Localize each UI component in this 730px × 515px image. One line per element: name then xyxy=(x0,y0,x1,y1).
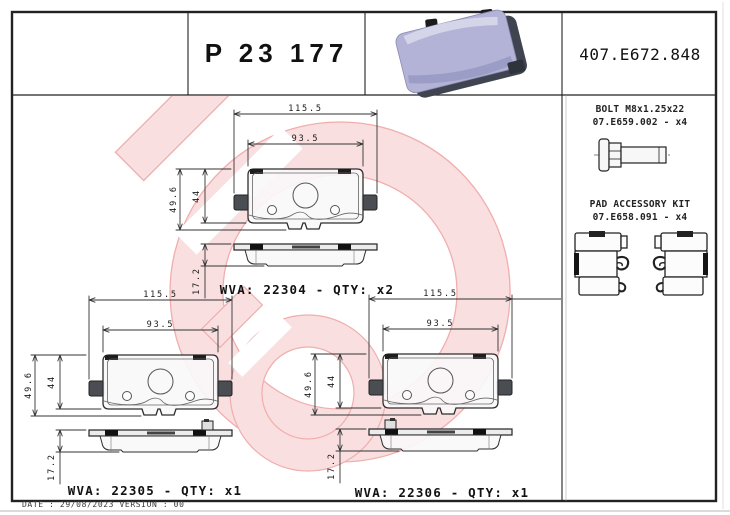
wear-indicator-tab-22306 xyxy=(385,418,396,429)
wva-label-22305: WVA: 22305 - QTY: x1 xyxy=(68,483,243,498)
reference-number: 407.E672.848 xyxy=(564,45,716,64)
pad-accessory-kit-reference: 07.E658.091 - x4 xyxy=(564,212,716,223)
brake-pad-datasheet: 115.5 93.5 49.6 xyxy=(0,0,730,515)
accessory-clip-left xyxy=(574,231,628,295)
pad-accessory-kit-title: PAD ACCESSORY KIT xyxy=(564,199,716,210)
pad-drawing-wva-22306 xyxy=(304,289,512,483)
wva-label-22306: WVA: 22306 - QTY: x1 xyxy=(355,485,530,500)
brake-pad-photo xyxy=(392,0,529,101)
wear-indicator-tab-22305 xyxy=(202,419,213,430)
wva-label-22304: WVA: 22304 - QTY: x2 xyxy=(220,282,395,297)
bolt-reference: 07.E659.002 - x4 xyxy=(564,117,716,128)
technical-drawing-canvas: 115.5 93.5 49.6 xyxy=(0,0,730,515)
date-version-footer: DATE : 29/08/2023 VERSION : 00 xyxy=(22,500,185,509)
bolt-drawing xyxy=(594,139,672,171)
part-number: P 23 177 xyxy=(188,38,365,69)
pad-drawing-wva-22305 xyxy=(24,290,232,484)
pad-drawing-wva-22304 xyxy=(169,104,377,298)
bolt-title: BOLT M8x1.25x22 xyxy=(564,104,716,115)
accessory-clip-right xyxy=(654,231,708,295)
